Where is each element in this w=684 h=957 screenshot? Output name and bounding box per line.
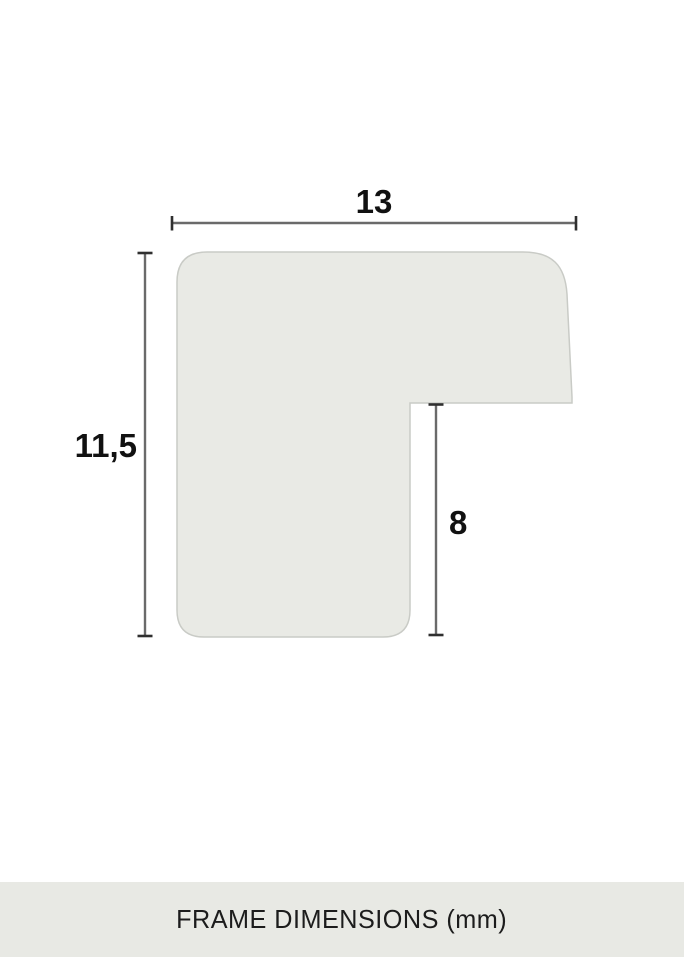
height-dimension-label: 11,5	[75, 427, 137, 464]
rabbet-depth-dimension: 8	[429, 404, 468, 636]
footer-caption: FRAME DIMENSIONS (mm)	[176, 904, 507, 935]
frame-profile-diagram: 13 11,5 8	[0, 0, 684, 882]
rabbet-depth-dimension-label: 8	[449, 504, 467, 541]
footer-caption-bar: FRAME DIMENSIONS (mm)	[0, 882, 684, 957]
width-dimension-label: 13	[356, 183, 393, 220]
frame-profile-shape	[177, 252, 572, 637]
frame-dimensions-panel: 13 11,5 8 FRAME DIMENSIONS (mm)	[0, 0, 684, 957]
width-dimension: 13	[172, 183, 576, 231]
height-dimension: 11,5	[75, 252, 153, 637]
